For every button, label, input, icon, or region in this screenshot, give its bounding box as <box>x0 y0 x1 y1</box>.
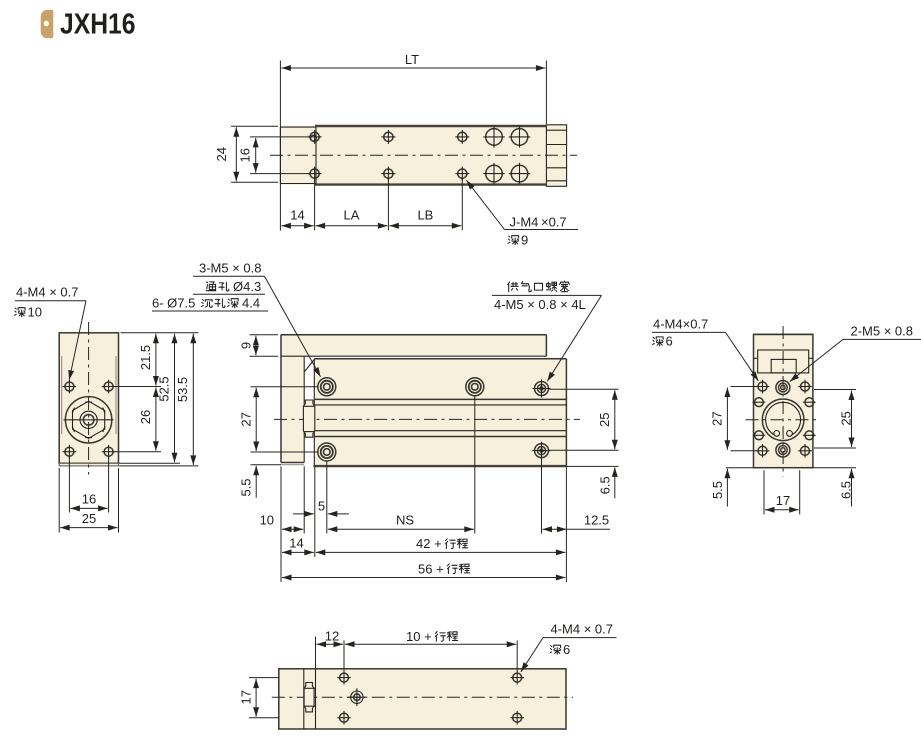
svg-text:10 +: 10 + <box>406 629 432 644</box>
svg-text:27: 27 <box>239 412 254 426</box>
svg-text:NS: NS <box>396 512 414 527</box>
svg-text:LA: LA <box>344 208 360 223</box>
svg-text:25: 25 <box>82 511 96 526</box>
svg-text:4.4: 4.4 <box>242 295 260 310</box>
svg-text:12.5: 12.5 <box>584 513 609 528</box>
svg-text:17: 17 <box>238 690 253 704</box>
svg-text:4-M4 × 0.7: 4-M4 × 0.7 <box>551 622 614 637</box>
svg-text:J-M4: J-M4 <box>510 215 539 230</box>
svg-text:JXH16: JXH16 <box>60 9 136 41</box>
svg-text:Ø4.3: Ø4.3 <box>233 279 261 294</box>
svg-text:6: 6 <box>563 642 570 657</box>
svg-text:10: 10 <box>260 512 274 527</box>
svg-text:16: 16 <box>238 148 253 162</box>
svg-text:27: 27 <box>710 411 725 425</box>
svg-text:52.5: 52.5 <box>156 376 171 401</box>
svg-text:5.5: 5.5 <box>710 481 725 499</box>
svg-text:25: 25 <box>838 411 853 425</box>
svg-text:26: 26 <box>138 410 153 424</box>
svg-text:5.5: 5.5 <box>239 478 254 496</box>
svg-text:6- Ø7.5: 6- Ø7.5 <box>152 295 195 310</box>
svg-text:24: 24 <box>214 147 229 161</box>
svg-text:10: 10 <box>28 305 42 320</box>
svg-text:17: 17 <box>776 493 790 508</box>
svg-text:LB: LB <box>417 208 433 223</box>
svg-text:25: 25 <box>597 413 612 427</box>
svg-text:4-M4 × 0.7: 4-M4 × 0.7 <box>16 285 79 300</box>
svg-text:6.5: 6.5 <box>839 481 854 499</box>
svg-text:42 +: 42 + <box>416 536 442 551</box>
svg-text:53.5: 53.5 <box>175 377 190 402</box>
svg-text:2-M5 × 0.8: 2-M5 × 0.8 <box>851 324 914 339</box>
svg-text:16: 16 <box>82 492 96 507</box>
svg-text:14: 14 <box>289 536 303 551</box>
svg-text:5: 5 <box>318 498 325 513</box>
svg-text:4-M4×0.7: 4-M4×0.7 <box>653 317 708 332</box>
svg-text:LT: LT <box>405 52 419 67</box>
svg-text:9: 9 <box>521 233 528 248</box>
svg-text:×0.7: ×0.7 <box>541 215 567 230</box>
svg-text:12: 12 <box>325 629 339 644</box>
svg-text:4-M5 × 0.8 × 4L: 4-M5 × 0.8 × 4L <box>494 297 586 312</box>
svg-text:6.5: 6.5 <box>597 476 612 494</box>
svg-text:6: 6 <box>666 334 673 349</box>
svg-text:56 +: 56 + <box>418 561 444 576</box>
svg-text:3-M5 × 0.8: 3-M5 × 0.8 <box>199 261 262 276</box>
svg-text:14: 14 <box>290 208 304 223</box>
svg-text:9: 9 <box>238 342 253 349</box>
svg-text:21.5: 21.5 <box>138 345 153 370</box>
